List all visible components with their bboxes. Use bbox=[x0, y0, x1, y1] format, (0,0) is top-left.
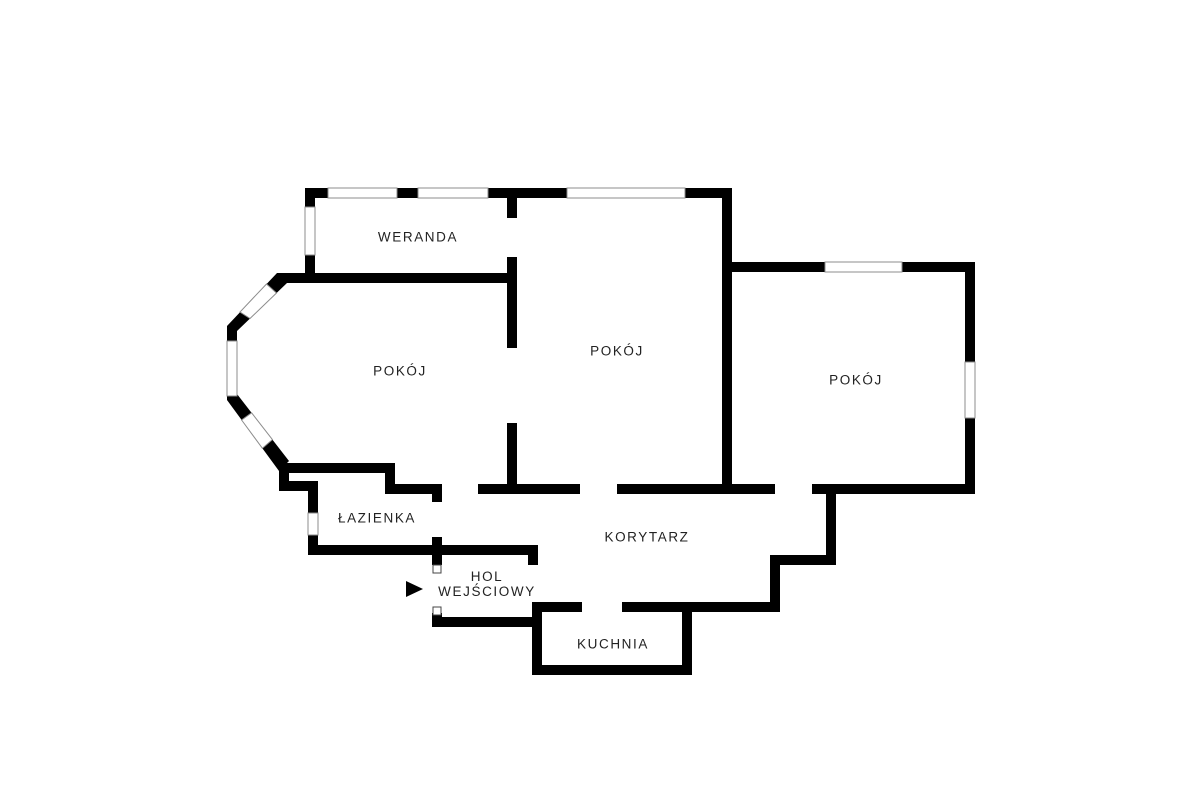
window-top-2 bbox=[418, 188, 488, 198]
window-weranda-west bbox=[305, 207, 315, 255]
room-label-hol: HOL WEJŚCIOWY bbox=[438, 569, 536, 599]
wall-pokoj-left-south bbox=[279, 463, 395, 473]
window-top-3 bbox=[567, 188, 685, 198]
window-lazienka-west bbox=[308, 513, 318, 535]
wall-kuchnia-west bbox=[532, 602, 542, 675]
room-label-weranda: WERANDA bbox=[378, 230, 458, 245]
room-label-pokoj-middle: POKÓJ bbox=[590, 344, 644, 359]
room-label-hol-line2: WEJŚCIOWY bbox=[438, 584, 536, 599]
wall-lazienka-south-hol-north bbox=[308, 545, 538, 555]
room-label-pokoj-left: POKÓJ bbox=[373, 364, 427, 379]
entrance-arrow-icon bbox=[406, 581, 423, 597]
room-label-lazienka: ŁAZIENKA bbox=[338, 511, 416, 526]
wall-hol-north-stub bbox=[528, 545, 538, 565]
floorplan-drawing bbox=[0, 0, 1200, 800]
wall-middle-room-south bbox=[617, 484, 775, 494]
wall-room-divider-upper bbox=[507, 283, 517, 348]
windows-group bbox=[227, 188, 975, 535]
walls-group bbox=[227, 188, 975, 675]
wall-hol-west-upper bbox=[432, 537, 442, 565]
wall-weranda-divider-lower bbox=[507, 257, 517, 283]
room-label-hol-line1: HOL bbox=[471, 569, 504, 584]
wall-step-left bbox=[385, 463, 395, 494]
window-bay-lower-diagonal bbox=[242, 413, 273, 449]
wall-kuchnia-north-left bbox=[532, 602, 582, 612]
room-label-korytarz: KORYTARZ bbox=[604, 530, 689, 545]
wall-east-stair-vertical bbox=[826, 484, 836, 565]
wall-room-divider-lower bbox=[507, 423, 517, 494]
wall-corridor-south bbox=[622, 602, 778, 612]
wall-corridor-north-left bbox=[478, 484, 580, 494]
wall-hol-south bbox=[432, 617, 542, 627]
wall-pokoj-right-south bbox=[812, 484, 975, 494]
floorplan-canvas: WERANDA POKÓJ POKÓJ POKÓJ ŁAZIENKA KORYT… bbox=[0, 0, 1200, 800]
room-label-pokoj-right: POKÓJ bbox=[829, 373, 883, 388]
room-label-kuchnia: KUCHNIA bbox=[577, 637, 649, 652]
wall-kuchnia-east bbox=[682, 602, 692, 675]
wall-lazienka-door-stub bbox=[432, 484, 442, 502]
entrance-door-jamb-bottom bbox=[433, 607, 441, 615]
window-pokoj-right-north bbox=[825, 262, 902, 272]
wall-weranda-south bbox=[277, 273, 517, 283]
wall-kuchnia-south bbox=[532, 665, 692, 675]
window-bay-west bbox=[227, 341, 237, 396]
window-top-1 bbox=[328, 188, 397, 198]
wall-weranda-divider-upper bbox=[507, 188, 517, 218]
window-pokoj-right-east bbox=[965, 362, 975, 418]
wall-middle-right-divider bbox=[722, 188, 732, 494]
window-bay-upper-diagonal bbox=[240, 284, 277, 319]
